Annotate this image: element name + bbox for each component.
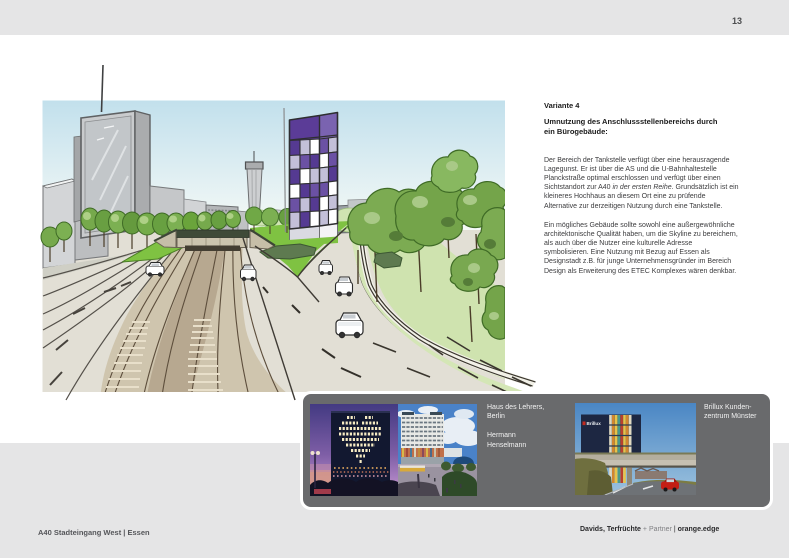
svg-text:Brillux: Brillux (587, 421, 602, 426)
